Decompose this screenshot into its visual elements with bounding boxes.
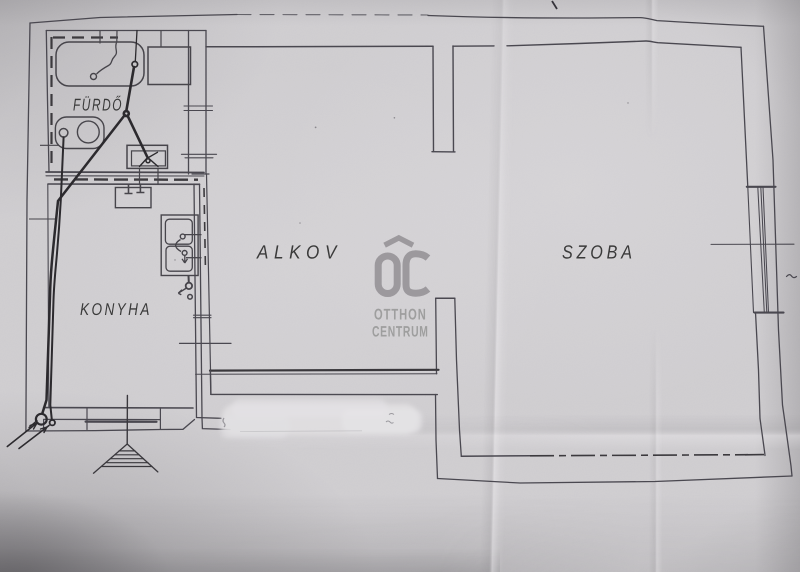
svg-text:CENTRUM: CENTRUM bbox=[372, 323, 429, 340]
svg-text:SZOBA: SZOBA bbox=[562, 243, 636, 264]
svg-text:OTTHON: OTTHON bbox=[374, 307, 427, 324]
svg-text:KONYHA: KONYHA bbox=[80, 300, 152, 319]
svg-text:ALKOV: ALKOV bbox=[256, 243, 342, 264]
svg-text:FÜRDŐ: FÜRDŐ bbox=[73, 96, 123, 115]
